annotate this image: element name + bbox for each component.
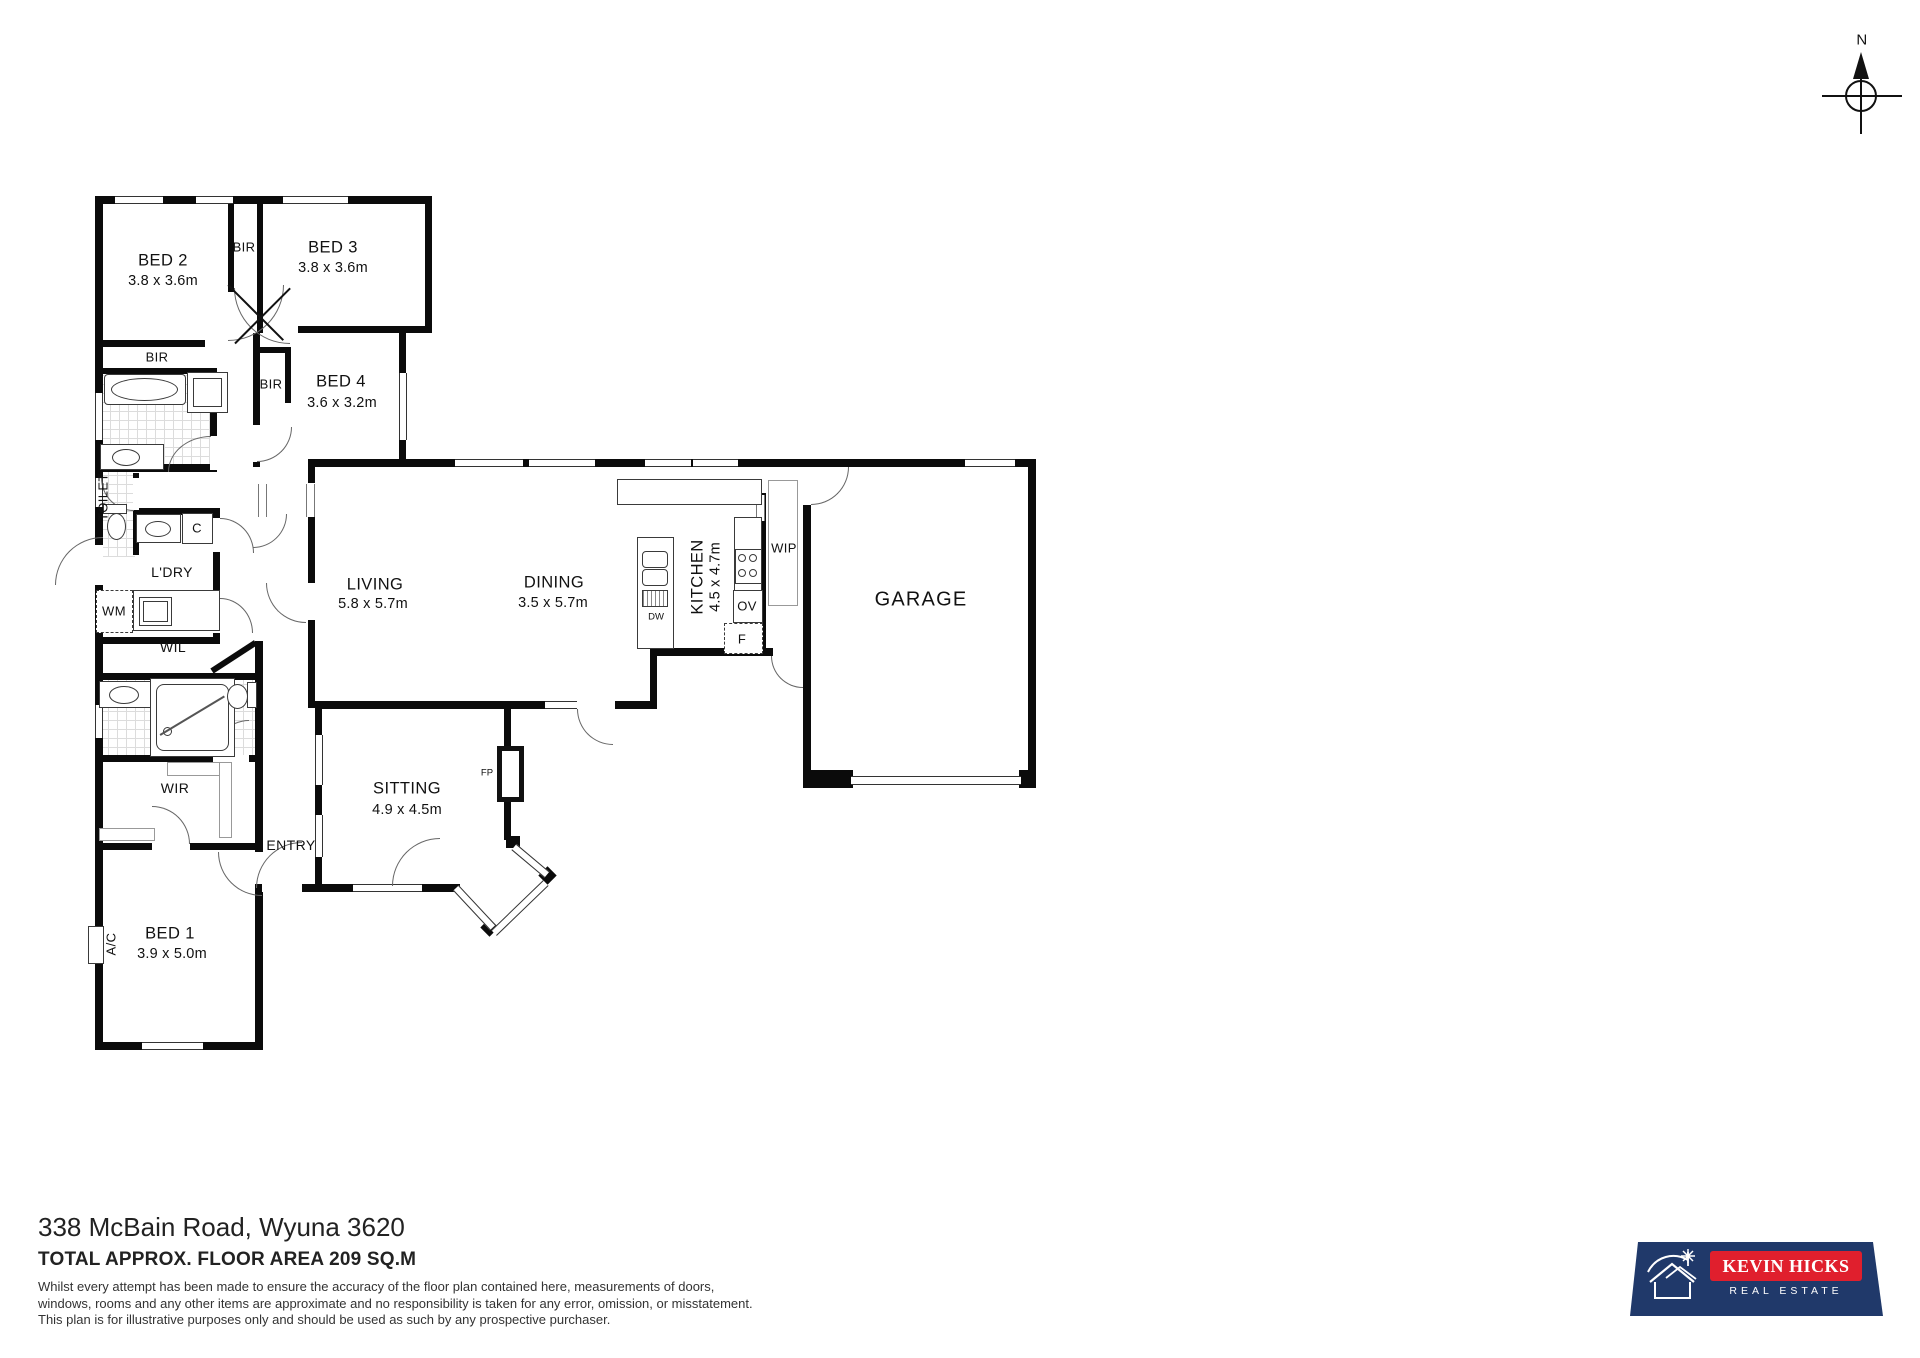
floor-plan: BED 2 3.8 x 3.6m BIR BED 3 3.8 x 3.6m BI…: [0, 0, 1920, 1358]
laundry-sink-bowl: [143, 601, 168, 622]
room-label-wir: WIR: [161, 780, 189, 796]
property-address: 338 McBain Road, Wyuna 3620: [38, 1212, 753, 1243]
window: [142, 1042, 203, 1050]
room-label-entry: ENTRY: [266, 837, 315, 853]
disclaimer-line2: windows, rooms and any other items are a…: [38, 1296, 753, 1313]
kitchen-label-text: KITCHEN: [689, 539, 708, 614]
room-label-living: LIVING: [347, 576, 404, 595]
door-gap: [577, 701, 615, 709]
window: [95, 705, 103, 738]
room-label-garage: GARAGE: [875, 589, 968, 612]
door-arc: [577, 709, 613, 745]
window: [693, 459, 738, 467]
door-arc: [257, 427, 292, 462]
label-air-conditioner: A/C: [104, 933, 119, 956]
window: [645, 459, 691, 467]
room-dims-dining: 3.5 x 5.7m: [518, 595, 588, 611]
room-label-sitting: SITTING: [373, 780, 441, 799]
wir-shelf: [219, 762, 232, 838]
garage-door: [851, 776, 1021, 785]
door-gap: [210, 436, 217, 470]
kitchen-bench-top: [617, 479, 762, 505]
window: [545, 701, 577, 709]
room-dims-sitting: 4.9 x 4.5m: [372, 802, 442, 818]
wall: [318, 701, 510, 709]
disclaimer: Whilst every attempt has been made to en…: [38, 1279, 753, 1329]
wall: [315, 701, 322, 892]
door-arc: [253, 514, 287, 548]
window: [455, 459, 523, 467]
label-bir-1: BIR: [233, 240, 256, 255]
room-label-bed3: BED 3: [308, 239, 358, 258]
window: [399, 373, 407, 440]
wir-shelf: [99, 828, 155, 841]
door-arc: [266, 583, 306, 623]
shower-tray: [193, 378, 222, 407]
compass-arrow-icon: [1853, 52, 1869, 79]
door-arc: [811, 467, 849, 505]
disclaimer-line3: This plan is for illustrative purposes o…: [38, 1312, 753, 1329]
powder-basin: [145, 521, 171, 537]
window: [965, 459, 1015, 467]
ensuite-basin: [109, 686, 139, 704]
opening-marker: [258, 484, 267, 517]
brand-name: KEVIN HICKS: [1710, 1251, 1862, 1281]
door-arc: [220, 518, 254, 553]
door-gap: [152, 843, 190, 850]
room-dims-bed4: 3.6 x 3.2m: [307, 395, 377, 411]
room-label-wil: WIL: [160, 639, 186, 655]
compass-north-label: N: [1856, 32, 1867, 49]
wall: [1019, 770, 1036, 788]
door-arc: [55, 537, 103, 585]
footer: 338 McBain Road, Wyuna 3620 TOTAL APPROX…: [38, 1212, 753, 1329]
room-label-bed4: BED 4: [316, 373, 366, 392]
bay-window: [453, 885, 496, 930]
window: [196, 196, 233, 204]
room-label-laundry: L'DRY: [151, 564, 193, 580]
floor-area-text: TOTAL APPROX. FLOOR AREA 209 SQ.M: [38, 1249, 753, 1271]
bathtub-basin: [111, 378, 178, 401]
door-gap: [773, 648, 803, 656]
label-dishwasher: DW: [648, 612, 664, 623]
door-gap: [308, 583, 315, 620]
compass: N: [1822, 28, 1902, 138]
label-oven: OV: [737, 599, 757, 614]
label-bir-3: BIR: [260, 377, 283, 392]
island-sink: [642, 551, 668, 568]
door-gap: [803, 467, 811, 505]
wall: [425, 196, 432, 333]
opening-marker: [306, 484, 315, 517]
brand-tagline: REAL ESTATE: [1710, 1285, 1862, 1297]
room-label-bed1: BED 1: [145, 925, 195, 944]
fireplace-box: [497, 746, 524, 802]
label-washing-machine: WM: [102, 604, 126, 619]
house-windmill-icon: [1644, 1246, 1706, 1309]
room-label-dining: DINING: [524, 574, 584, 593]
window: [529, 459, 595, 467]
island-sink: [642, 569, 668, 586]
room-dims-bed1: 3.9 x 5.0m: [137, 946, 207, 962]
window: [283, 196, 348, 204]
label-fridge: F: [738, 632, 746, 647]
room-label-bed2: BED 2: [138, 252, 188, 271]
air-conditioner-unit: [88, 926, 104, 964]
vanity-basin: [112, 449, 140, 466]
wall: [95, 637, 220, 644]
window: [315, 735, 323, 785]
ensuite-toilet-pan: [227, 684, 248, 709]
wall-diagonal: [210, 640, 257, 673]
cooktop-burner: [738, 569, 746, 577]
door-arc: [220, 598, 253, 633]
door-arc: [392, 838, 440, 886]
ensuite-shower-tray: [156, 684, 229, 751]
window: [115, 196, 163, 204]
ensuite-toilet-cistern: [247, 682, 257, 708]
door-gap: [205, 340, 228, 347]
room-label-toilet: TOILET: [96, 473, 111, 521]
disclaimer-line1: Whilst every attempt has been made to en…: [38, 1279, 753, 1296]
bay-window: [491, 880, 548, 936]
room-dims-living: 5.8 x 5.7m: [338, 596, 408, 612]
window: [95, 393, 103, 440]
room-dims-bed3: 3.8 x 3.6m: [298, 260, 368, 276]
label-cupboard: C: [192, 521, 202, 536]
cooktop-burner: [749, 569, 757, 577]
label-fireplace: FP: [481, 768, 493, 779]
wall: [1028, 459, 1036, 788]
compass-circle-icon: [1845, 80, 1877, 112]
bay-window: [511, 844, 549, 878]
door-arc: [218, 852, 262, 896]
cooktop-burner: [749, 554, 757, 562]
kitchen-dims-text: 4.5 x 4.7m: [708, 539, 724, 614]
wall: [255, 892, 263, 1050]
door-gap: [213, 518, 220, 552]
door-arc: [152, 806, 190, 844]
island-drainer: [642, 590, 668, 607]
wall: [650, 648, 657, 709]
room-label-kitchen: KITCHEN 4.5 x 4.7m: [689, 539, 724, 614]
label-bir-2: BIR: [146, 350, 169, 365]
door-arc: [771, 656, 803, 688]
wall: [803, 467, 811, 780]
window: [315, 815, 323, 857]
agency-logo: KEVIN HICKS REAL ESTATE: [1630, 1236, 1888, 1316]
cooktop-burner: [738, 554, 746, 562]
wall: [803, 770, 853, 788]
room-dims-bed2: 3.8 x 3.6m: [128, 273, 198, 289]
wall: [285, 347, 291, 403]
label-wip: WIP: [771, 541, 797, 556]
